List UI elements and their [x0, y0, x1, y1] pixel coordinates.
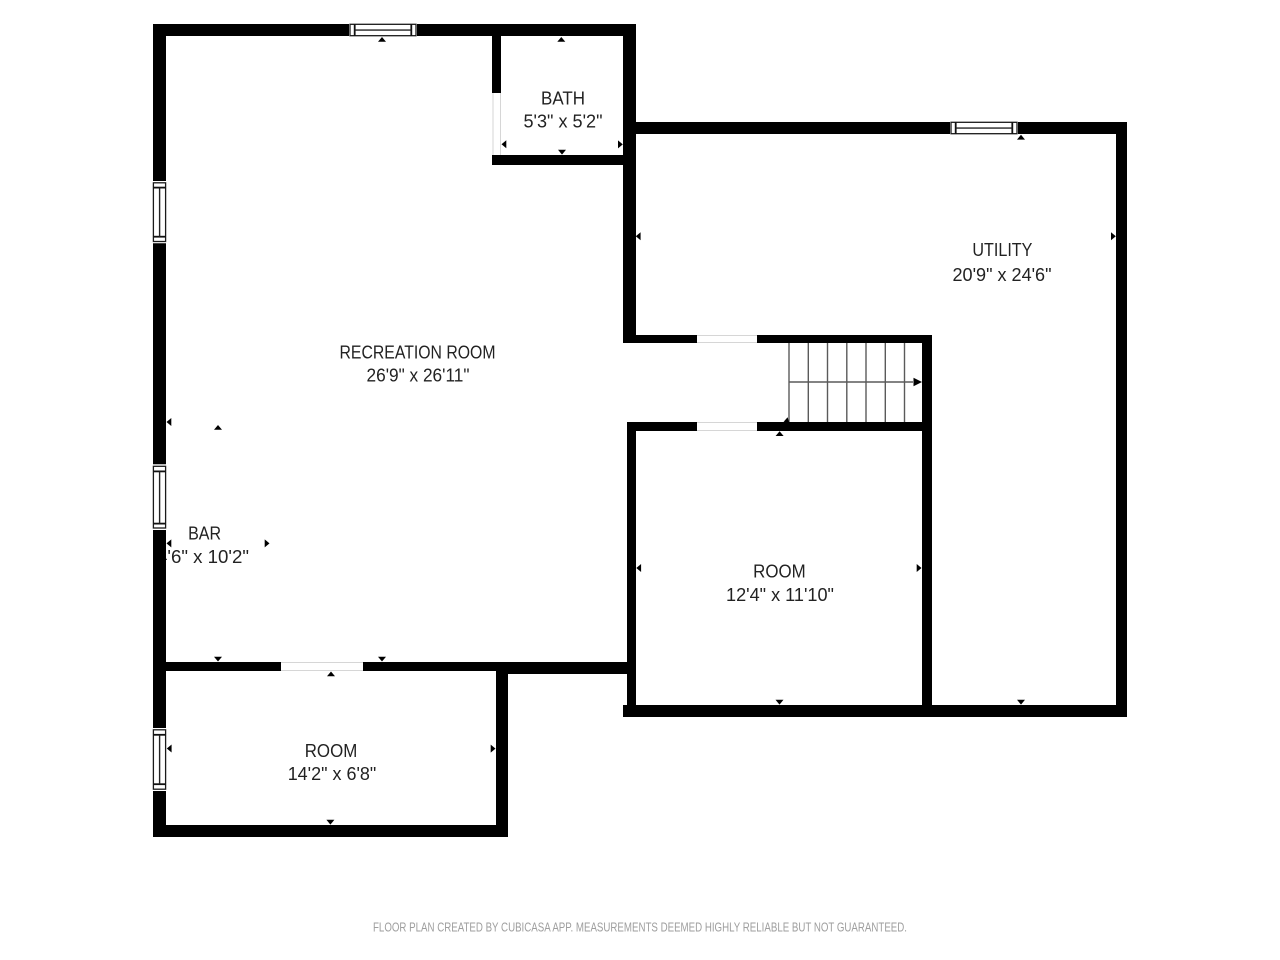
- svg-text:14'2" x 6'8": 14'2" x 6'8": [288, 764, 377, 784]
- svg-text:ROOM: ROOM: [305, 741, 358, 761]
- svg-text:5'3" x 5'2": 5'3" x 5'2": [524, 112, 603, 132]
- svg-text:BATH: BATH: [541, 89, 585, 109]
- svg-text:20'9" x 24'6": 20'9" x 24'6": [953, 265, 1052, 285]
- svg-text:26'9" x 26'11": 26'9" x 26'11": [367, 366, 470, 386]
- svg-text:12'4" x 11'10": 12'4" x 11'10": [726, 585, 834, 605]
- svg-text:RECREATION ROOM: RECREATION ROOM: [340, 343, 496, 363]
- svg-text:BAR: BAR: [188, 524, 221, 544]
- svg-text:FLOOR PLAN CREATED BY CUBICASA: FLOOR PLAN CREATED BY CUBICASA APP. MEAS…: [373, 919, 907, 934]
- svg-text:4'6" x 10'2": 4'6" x 10'2": [157, 547, 249, 567]
- svg-text:ROOM: ROOM: [753, 561, 806, 581]
- svg-text:UTILITY: UTILITY: [972, 240, 1032, 260]
